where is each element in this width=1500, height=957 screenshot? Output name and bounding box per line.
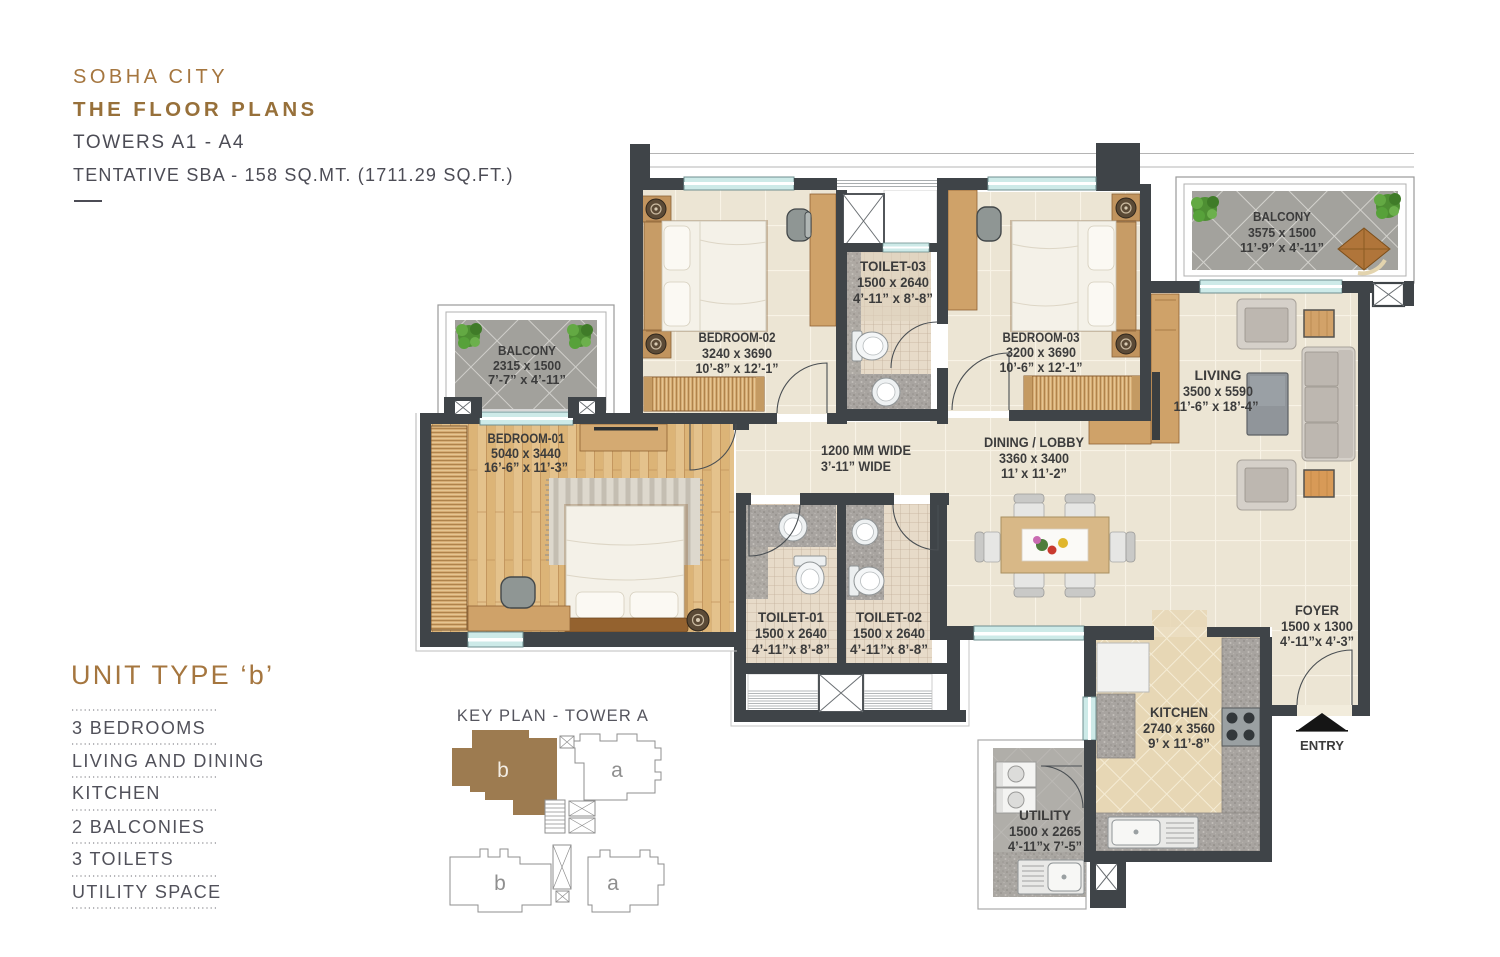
- svg-text:LIVING AND DINING: LIVING AND DINING: [72, 751, 265, 771]
- svg-text:UTILITY SPACE: UTILITY SPACE: [72, 882, 222, 902]
- svg-text:DINING / LOBBY: DINING / LOBBY: [984, 435, 1084, 450]
- svg-text:5040 x 3440: 5040 x 3440: [491, 446, 561, 461]
- svg-text:2740 x 3560: 2740 x 3560: [1143, 721, 1215, 736]
- svg-text:1200 MM WIDE: 1200 MM WIDE: [821, 443, 911, 458]
- svg-text:SOBHA CITY: SOBHA CITY: [73, 66, 228, 88]
- svg-text:a: a: [607, 872, 619, 895]
- svg-text:KITCHEN: KITCHEN: [72, 783, 161, 803]
- svg-text:UNIT TYPE ‘b’: UNIT TYPE ‘b’: [71, 660, 274, 690]
- svg-text:BALCONY: BALCONY: [1253, 209, 1311, 224]
- svg-text:b: b: [497, 759, 509, 782]
- svg-text:3240 x 3690: 3240 x 3690: [702, 346, 772, 361]
- svg-text:TOILET-01: TOILET-01: [758, 610, 824, 625]
- svg-text:10’-8” x 12’-1”: 10’-8” x 12’-1”: [696, 361, 779, 376]
- svg-text:1500 x 2640: 1500 x 2640: [755, 626, 827, 641]
- svg-text:3500 x 5590: 3500 x 5590: [1183, 384, 1253, 399]
- svg-text:3575 x 1500: 3575 x 1500: [1248, 225, 1316, 240]
- svg-text:3 BEDROOMS: 3 BEDROOMS: [72, 718, 206, 738]
- svg-text:10’-6” x 12’-1”: 10’-6” x 12’-1”: [1000, 360, 1083, 375]
- svg-text:4’-11”x 8’-8”: 4’-11”x 8’-8”: [850, 642, 928, 657]
- svg-text:2 BALCONIES: 2 BALCONIES: [72, 817, 205, 837]
- svg-text:KITCHEN: KITCHEN: [1150, 705, 1208, 720]
- svg-text:4’-11”x 8’-8”: 4’-11”x 8’-8”: [752, 642, 830, 657]
- svg-text:2315 x 1500: 2315 x 1500: [493, 358, 561, 373]
- svg-text:3200 x 3690: 3200 x 3690: [1006, 345, 1076, 360]
- svg-text:11’-9” x 4’-11”: 11’-9” x 4’-11”: [1240, 240, 1324, 255]
- svg-text:4’-11”x 4’-3”: 4’-11”x 4’-3”: [1280, 634, 1354, 649]
- svg-text:11’-6” x 18’-4”: 11’-6” x 18’-4”: [1174, 399, 1259, 414]
- svg-text:a: a: [611, 759, 623, 782]
- svg-text:3 TOILETS: 3 TOILETS: [72, 849, 174, 869]
- svg-text:7’-7” x 4’-11”: 7’-7” x 4’-11”: [488, 372, 566, 387]
- svg-text:1500 x 2640: 1500 x 2640: [857, 275, 929, 290]
- svg-text:BEDROOM-02: BEDROOM-02: [699, 330, 776, 345]
- svg-text:TOILET-02: TOILET-02: [856, 610, 922, 625]
- svg-text:4’-11” x 8’-8”: 4’-11” x 8’-8”: [853, 291, 933, 306]
- svg-text:ENTRY: ENTRY: [1300, 738, 1344, 753]
- svg-text:FOYER: FOYER: [1295, 603, 1339, 618]
- svg-text:TENTATIVE SBA - 158 SQ.MT. (17: TENTATIVE SBA - 158 SQ.MT. (1711.29 SQ.F…: [73, 165, 514, 185]
- svg-text:UTILITY: UTILITY: [1019, 808, 1071, 823]
- svg-text:TOWERS A1 - A4: TOWERS A1 - A4: [73, 132, 245, 153]
- svg-text:BEDROOM-01: BEDROOM-01: [488, 431, 565, 446]
- svg-text:4’-11”x 7’-5”: 4’-11”x 7’-5”: [1008, 839, 1082, 854]
- svg-text:1500 x 1300: 1500 x 1300: [1281, 619, 1353, 634]
- svg-text:BEDROOM-03: BEDROOM-03: [1003, 330, 1080, 345]
- svg-text:1500 x 2265: 1500 x 2265: [1009, 824, 1081, 839]
- svg-text:TOILET-03: TOILET-03: [860, 259, 926, 274]
- svg-text:3’-11” WIDE: 3’-11” WIDE: [821, 459, 891, 474]
- svg-text:b: b: [494, 872, 506, 895]
- svg-text:1500 x 2640: 1500 x 2640: [853, 626, 925, 641]
- svg-text:3360 x 3400: 3360 x 3400: [999, 451, 1069, 466]
- svg-text:THE FLOOR PLANS: THE FLOOR PLANS: [73, 98, 318, 121]
- svg-text:11’ x 11’-2”: 11’ x 11’-2”: [1001, 466, 1067, 481]
- svg-text:KEY PLAN - TOWER A: KEY PLAN - TOWER A: [457, 707, 649, 725]
- svg-text:16’-6” x 11’-3”: 16’-6” x 11’-3”: [484, 460, 568, 475]
- svg-text:BALCONY: BALCONY: [498, 343, 556, 358]
- svg-text:LIVING: LIVING: [1195, 368, 1242, 383]
- svg-text:9’ x 11’-8”: 9’ x 11’-8”: [1148, 736, 1210, 751]
